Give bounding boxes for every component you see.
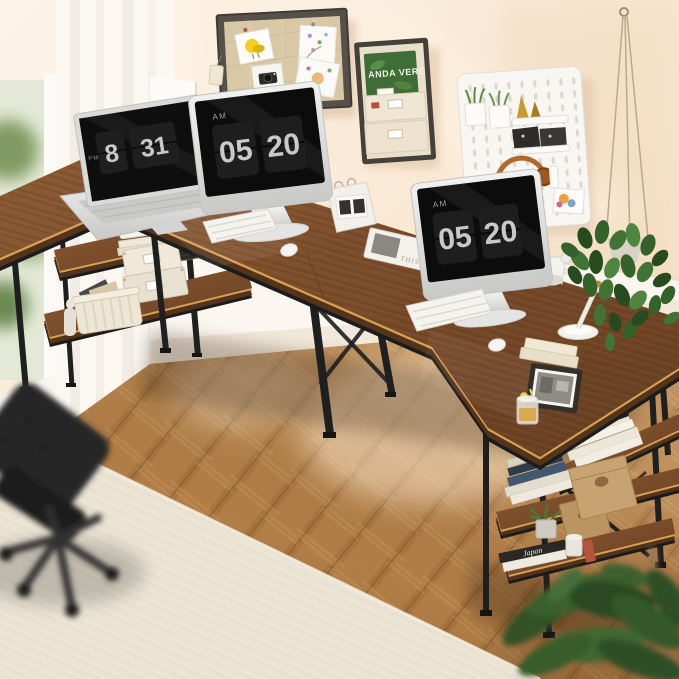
photo-scene: ANDA VERE	[0, 0, 679, 679]
monitor-left-clock-meridiem: AM	[212, 111, 228, 122]
pegboard-hook	[549, 166, 559, 189]
shelf-cup	[566, 534, 582, 556]
memo-card-bird	[235, 29, 274, 65]
organizer-pocket	[365, 92, 427, 122]
organizer-pocket	[365, 120, 429, 154]
monitor-right-clock-meridiem: AM	[432, 199, 448, 210]
monitor-left-clock-minutes: 20	[265, 127, 302, 164]
pegboard-postcard	[553, 188, 585, 214]
monitor-right-clock-minutes: 20	[482, 214, 519, 251]
monitor-left-clock-hours: 05	[217, 133, 254, 170]
pegboard-planter	[488, 90, 512, 128]
monitor-right-clock-hours: 05	[436, 220, 473, 257]
wall-file-organizer: ANDA VERE	[354, 38, 436, 165]
laptop-clock-minutes: 31	[138, 131, 170, 163]
